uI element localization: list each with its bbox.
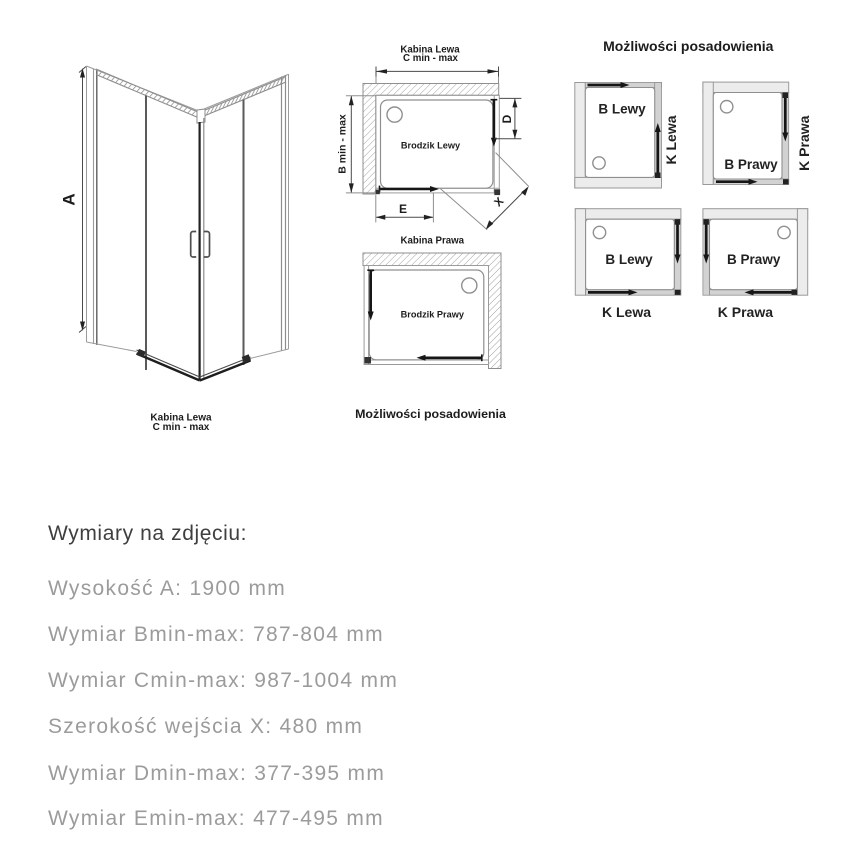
svg-text:B Lewy: B Lewy <box>605 252 653 267</box>
svg-text:K Prawa: K Prawa <box>796 115 812 170</box>
svg-text:Brodzik Lewy: Brodzik Lewy <box>401 141 461 151</box>
svg-text:X: X <box>492 195 506 209</box>
svg-text:B Prawy: B Prawy <box>724 157 778 172</box>
svg-text:C min - max: C min - max <box>153 422 210 433</box>
svg-text:B Lewy: B Lewy <box>598 102 646 117</box>
svg-text:A: A <box>60 193 79 205</box>
svg-text:K Prawa: K Prawa <box>718 304 773 320</box>
svg-text:K Lewa: K Lewa <box>602 304 651 320</box>
svg-text:Kabina Prawa: Kabina Prawa <box>401 236 465 247</box>
svg-text:Brodzik Prawy: Brodzik Prawy <box>401 310 465 320</box>
svg-text:K Lewa: K Lewa <box>663 115 679 164</box>
svg-text:Możliwości posadowienia: Możliwości posadowienia <box>603 38 774 54</box>
svg-text:Możliwości posadowienia: Możliwości posadowienia <box>355 407 506 421</box>
svg-text:B Prawy: B Prawy <box>727 252 781 267</box>
svg-text:D: D <box>500 114 514 123</box>
svg-text:C min - max: C min - max <box>403 53 459 64</box>
svg-text:B min - max: B min - max <box>337 114 349 174</box>
svg-text:E: E <box>399 202 407 216</box>
